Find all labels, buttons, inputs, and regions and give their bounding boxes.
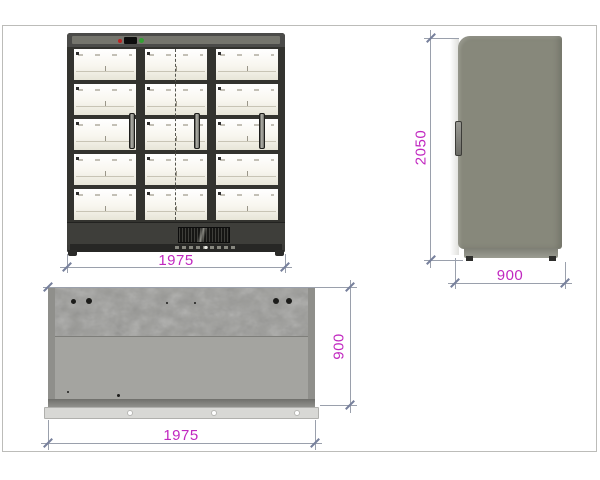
shelf-row — [74, 119, 136, 150]
extension-line — [320, 405, 357, 406]
top-view — [48, 288, 315, 399]
top-view-side-wall — [308, 288, 315, 399]
shelf-row — [216, 49, 278, 80]
flange-hole — [211, 410, 217, 416]
extension-line — [43, 287, 357, 288]
dimension-front-width-label: 1975 — [136, 252, 216, 269]
glass-door-left — [74, 49, 136, 220]
green-led-icon — [139, 38, 144, 43]
mounting-hole — [166, 302, 168, 304]
shelf-row — [145, 154, 207, 185]
ventilation-grille-icon — [178, 227, 230, 243]
shelf-row — [216, 84, 278, 115]
shelf-row — [145, 189, 207, 220]
galvanized-back-panel — [55, 288, 308, 336]
cabinet-body — [67, 33, 285, 252]
cabinet-foot — [549, 256, 556, 261]
glass-door-area — [67, 47, 285, 222]
mounting-hole — [273, 298, 279, 304]
shelf-row — [216, 154, 278, 185]
cabinet-base — [70, 244, 282, 252]
side-door-handle — [455, 121, 462, 156]
shelf-row — [74, 189, 136, 220]
cabinet-bottom-panel — [67, 222, 285, 245]
extension-line — [565, 262, 566, 289]
dimension-top-width-label: 1975 — [141, 427, 221, 444]
cabinet-foot — [466, 256, 473, 261]
flange-hole — [294, 410, 300, 416]
top-view-front-flange — [44, 407, 319, 419]
cabinet-foot — [275, 250, 284, 256]
glass-door-right — [216, 49, 278, 220]
controller-display — [124, 37, 137, 44]
extension-line — [48, 420, 49, 450]
shelf-row — [145, 84, 207, 115]
cabinet-top-panel — [67, 33, 285, 47]
mounting-hole — [67, 391, 69, 393]
mounting-hole — [71, 299, 76, 304]
galvanized-texture — [55, 288, 308, 336]
top-view-side-wall — [48, 288, 55, 399]
dimension-line-top-depth — [350, 280, 351, 413]
door-handle — [259, 113, 265, 149]
extension-line — [455, 258, 456, 289]
side-view-panel — [458, 36, 562, 249]
base-markings — [175, 246, 237, 249]
extension-line — [315, 420, 316, 450]
top-cover-panel — [55, 337, 308, 399]
dimension-line-height — [430, 30, 431, 268]
front-view — [67, 33, 285, 256]
door-handle — [194, 113, 200, 149]
mounting-hole — [117, 394, 120, 397]
shelf-row — [216, 189, 278, 220]
side-view-base — [464, 248, 558, 258]
dimension-top-depth-label: 900 — [331, 317, 348, 377]
shelf-row — [216, 119, 278, 150]
flange-hole — [127, 410, 133, 416]
dimension-height-label: 2050 — [413, 118, 430, 178]
shelf-row — [74, 49, 136, 80]
shelf-row — [74, 84, 136, 115]
shelf-row — [74, 154, 136, 185]
mounting-hole — [194, 302, 196, 304]
door-split-line — [175, 49, 176, 220]
door-handle — [129, 113, 135, 149]
red-led-icon — [118, 39, 122, 43]
top-panel-band — [72, 36, 280, 44]
dimension-side-depth-label: 900 — [480, 267, 540, 284]
top-view-front-bevel — [48, 399, 315, 407]
cabinet-foot — [68, 250, 77, 256]
shelf-row — [145, 49, 207, 80]
mounting-hole — [86, 298, 92, 304]
mounting-hole — [286, 298, 292, 304]
